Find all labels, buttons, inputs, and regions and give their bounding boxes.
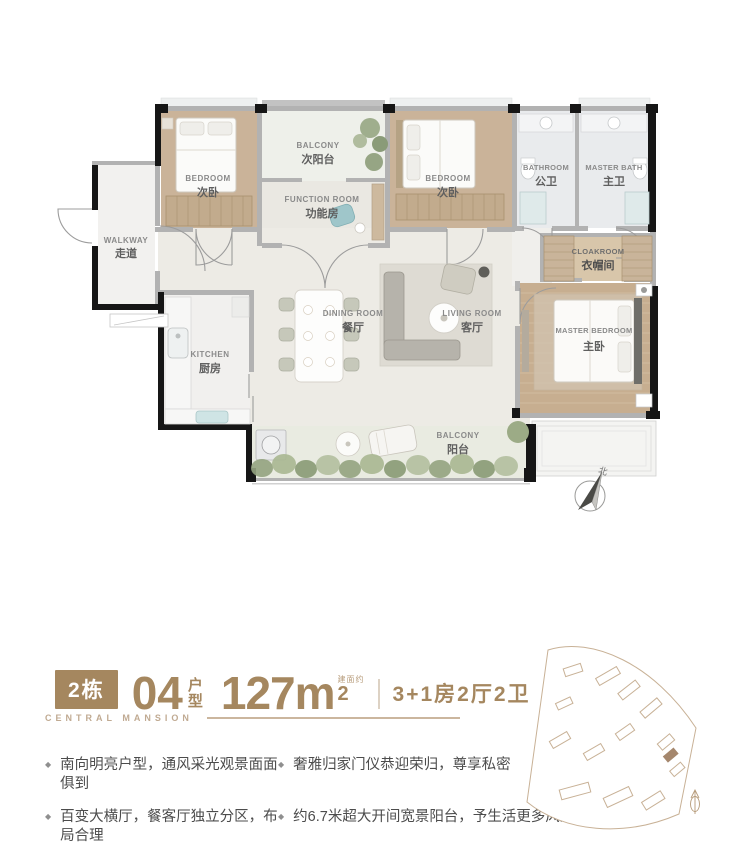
- room-label-living-en: LIVING ROOM: [442, 309, 501, 318]
- room-label-balcony-north-cn: 次阳台: [302, 152, 335, 166]
- area-value: 127m: [221, 674, 335, 712]
- diamond-bullet-icon: ◆: [45, 812, 51, 822]
- room-label-master-bath-en: MASTER BATH: [585, 163, 642, 172]
- brand-underline: [207, 717, 460, 719]
- room-label-bedroom-b-en: BEDROOM: [425, 174, 470, 183]
- site-compass-icon: [691, 790, 700, 814]
- area-superscript-block: 建面约 2: [338, 674, 365, 702]
- feature-text: 奢雅归家门仪恭迎荣归，尊享私密: [293, 756, 511, 775]
- room-label-kitchen-cn: 厨房: [199, 361, 221, 375]
- brand-text: CENTRAL MANSION: [45, 713, 193, 723]
- unit-info: 2栋 04 户型 127m 建面约 2 3+1房2厅2卫: [55, 664, 531, 712]
- room-label-master-bath-cn: 主卫: [603, 174, 625, 188]
- room-label-dining-en: DINING ROOM: [323, 309, 384, 318]
- info-divider: [378, 679, 380, 709]
- room-label-master-bedroom-cn: 主卧: [583, 339, 605, 353]
- building-badge: 2栋: [55, 670, 118, 709]
- room-label-bathroom-cn: 公卫: [535, 175, 557, 188]
- room-label-kitchen-en: KITCHEN: [190, 350, 229, 359]
- site-plan: [512, 636, 740, 846]
- feature-text: 南向明亮户型，通风采光观景面面俱到: [60, 756, 278, 794]
- site-boundary: [527, 646, 696, 828]
- room-label-balcony-north-en: BALCONY: [296, 141, 339, 150]
- dining-table: [279, 290, 359, 382]
- room-label-balcony-south-cn: 阳台: [447, 442, 469, 456]
- area-exponent: 2: [338, 686, 349, 702]
- feature-item: ◆ 百变大横厅，餐客厅独立分区，布局合理: [45, 808, 278, 846]
- diamond-bullet-icon: ◆: [45, 760, 51, 770]
- diamond-bullet-icon: ◆: [278, 760, 284, 770]
- room-label-bedroom-a-cn: 次卧: [197, 185, 219, 199]
- brand-row: CENTRAL MANSION: [45, 713, 460, 723]
- room-label-bedroom-a-en: BEDROOM: [185, 174, 230, 183]
- feature-text: 百变大横厅，餐客厅独立分区，布局合理: [60, 808, 278, 846]
- feature-item: ◆ 南向明亮户型，通风采光观景面面俱到: [45, 756, 278, 794]
- room-label-cloakroom-en: CLOAKROOM: [572, 247, 625, 256]
- room-label-cloakroom-cn: 衣帽间: [582, 258, 615, 272]
- room-label-function-en: FUNCTION ROOM: [285, 195, 360, 204]
- room-label-dining-cn: 餐厅: [341, 320, 364, 334]
- room-label-living-cn: 客厅: [460, 320, 483, 334]
- room-label-walkway-en: WALKWAY: [104, 236, 149, 245]
- room-label-bedroom-b-cn: 次卧: [437, 185, 459, 199]
- room-label-bathroom-en: BATHROOM: [523, 163, 569, 172]
- diamond-bullet-icon: ◆: [278, 812, 284, 822]
- floor-plan-page: WALKWAY 走道 BEDROOM 次卧 BALCONY 次阳台 FUNCTI…: [0, 0, 740, 849]
- entry-plate: [110, 314, 168, 327]
- room-label-balcony-south-en: BALCONY: [436, 431, 479, 440]
- room-label-function-cn: 功能房: [306, 206, 339, 220]
- room-label-walkway-cn: 走道: [114, 246, 137, 260]
- floor-plan: WALKWAY 走道 BEDROOM 次卧 BALCONY 次阳台 FUNCTI…: [50, 78, 690, 538]
- unit-type-label: 户型: [188, 678, 205, 710]
- room-label-master-bedroom-en: MASTER BEDROOM: [555, 326, 632, 335]
- layout-spec: 3+1房2厅2卫: [393, 678, 531, 708]
- unit-number: 04: [132, 674, 183, 712]
